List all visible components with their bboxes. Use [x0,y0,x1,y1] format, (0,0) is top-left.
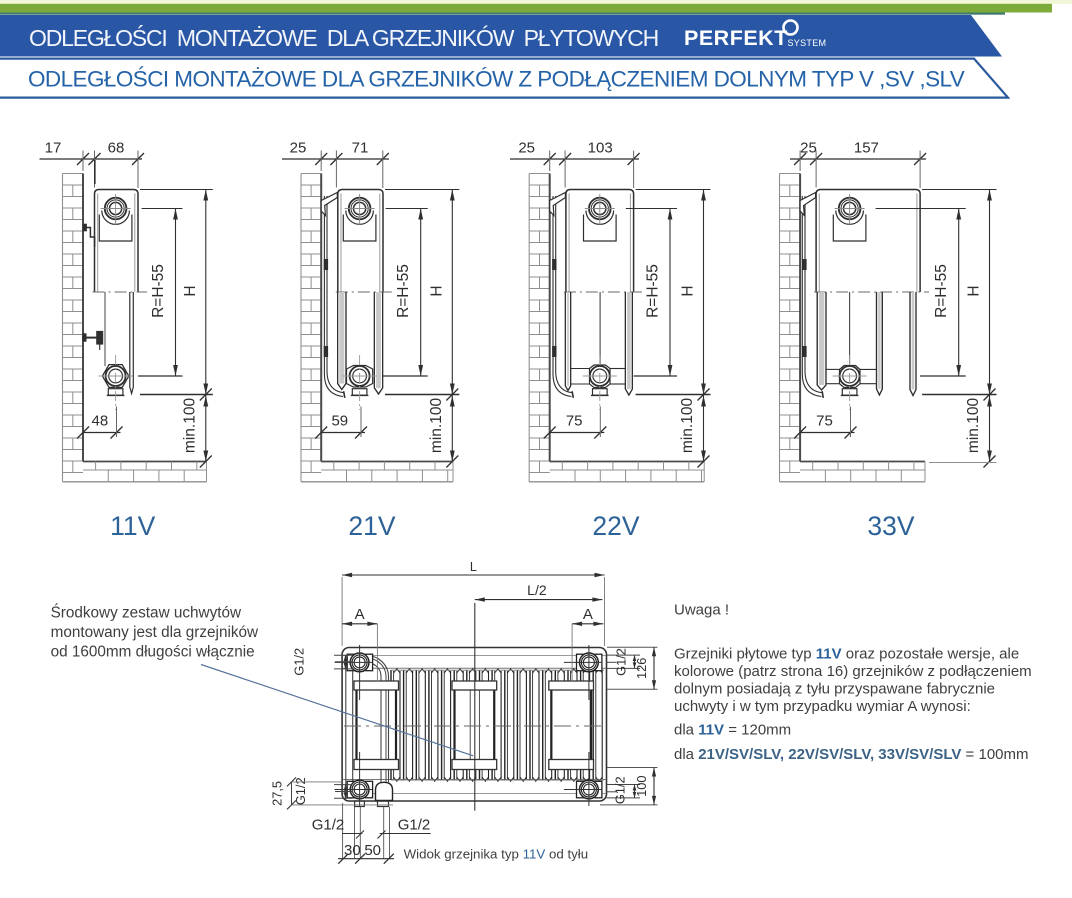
svg-text:dolnym posiadają z tyłu przysp: dolnym posiadają z tyłu przyspawane fabr… [674,680,995,697]
svg-text:H: H [680,285,697,296]
svg-text:11V: 11V [110,511,156,541]
svg-text:157: 157 [854,140,879,157]
svg-text:A: A [355,606,365,623]
svg-text:103: 103 [588,140,613,157]
svg-text:ODLEGŁOŚCI MONTAŻOWE DLA GRZEJ: ODLEGŁOŚCI MONTAŻOWE DLA GRZEJNIKÓW Z PO… [28,66,965,91]
svg-text:G1/2: G1/2 [292,648,307,676]
svg-text:59: 59 [331,413,348,430]
svg-text:SYSTEM: SYSTEM [788,38,827,48]
svg-text:G1/2: G1/2 [613,648,628,676]
svg-text:25: 25 [800,140,817,157]
svg-text:H: H [428,285,445,296]
svg-text:27,5: 27,5 [270,781,285,806]
svg-text:25: 25 [290,140,307,157]
svg-text:dla 11V = 120mm: dla 11V = 120mm [674,721,791,738]
svg-text:R=H-55: R=H-55 [395,264,412,318]
svg-text:Grzejniki płytowe typ 11V oraz: Grzejniki płytowe typ 11V oraz pozostałe… [674,645,1019,662]
svg-text:uchwyty i w tym przypadku wymi: uchwyty i w tym przypadku wymiar A wynos… [674,698,971,715]
svg-text:Widok grzejnika typ 11V od tył: Widok grzejnika typ 11V od tyłu [404,847,589,862]
svg-text:21V: 21V [348,511,395,541]
svg-text:68: 68 [108,140,125,157]
svg-text:Uwaga !: Uwaga ! [674,602,729,619]
svg-text:75: 75 [566,413,583,430]
svg-text:Środkowy zestaw uchwytów: Środkowy zestaw uchwytów [51,603,242,621]
svg-text:71: 71 [352,140,369,157]
svg-text:50: 50 [364,842,381,859]
svg-text:R=H-55: R=H-55 [150,264,167,318]
svg-text:33V: 33V [867,511,914,541]
svg-text:22V: 22V [592,511,639,541]
svg-text:min.100: min.100 [965,398,982,454]
svg-text:A: A [583,606,593,623]
svg-text:H: H [966,285,983,296]
svg-text:126: 126 [634,658,649,679]
svg-text:G1/2: G1/2 [312,817,345,834]
svg-text:L/2: L/2 [527,582,547,598]
svg-text:montowany jest dla grzejników: montowany jest dla grzejników [51,624,259,641]
svg-text:min.100: min.100 [679,398,696,454]
svg-text:17: 17 [45,140,62,157]
svg-text:R=H-55: R=H-55 [933,264,950,318]
svg-text:R=H-55: R=H-55 [645,264,662,318]
svg-text:H: H [182,285,199,296]
svg-text:75: 75 [816,413,833,430]
svg-text:48: 48 [92,413,109,430]
svg-text:L: L [470,560,477,574]
svg-text:G1/2: G1/2 [613,776,628,804]
svg-text:G1/2: G1/2 [398,817,431,834]
svg-text:ODLEGŁOŚCI MONTAŻOWE DLA GRZ: ODLEGŁOŚCI MONTAŻOWE DLA GRZEJNIKÓW PŁYT… [29,24,658,51]
svg-text:25: 25 [518,140,535,157]
svg-text:kolorowe (patrz strona 16) grz: kolorowe (patrz strona 16) grzejników z … [674,663,1032,680]
svg-text:30: 30 [344,842,361,859]
svg-text:dla 21V/SV/SLV, 22V/SV/SLV, 33: dla 21V/SV/SLV, 22V/SV/SLV, 33V/SV/SLV =… [674,746,1029,763]
svg-text:min.100: min.100 [428,398,445,454]
svg-text:min.100: min.100 [181,398,198,454]
svg-text:PERFEKT: PERFEKT [684,26,788,50]
svg-text:100: 100 [634,776,649,797]
svg-text:od 1600mm długości włącznie: od 1600mm długości włącznie [51,644,255,661]
